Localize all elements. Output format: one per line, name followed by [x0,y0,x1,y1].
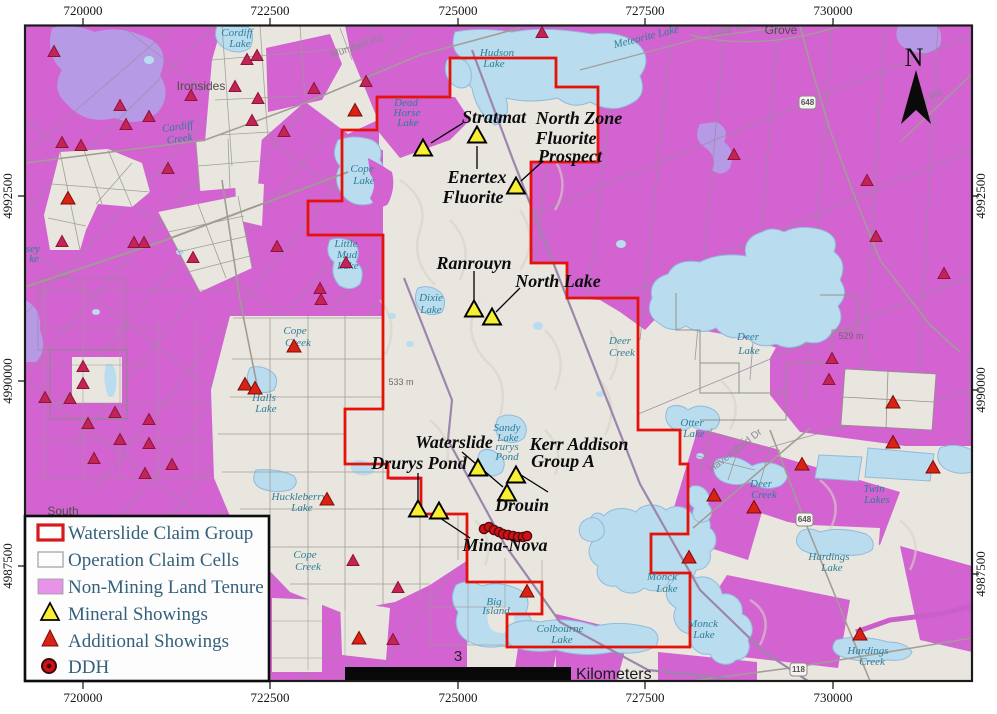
svg-text:Fluorite: Fluorite [441,187,503,207]
svg-text:Island: Island [481,605,510,617]
svg-text:Lake: Lake [820,562,843,574]
svg-text:Fluorite: Fluorite [534,128,596,148]
svg-text:722500: 722500 [251,3,290,18]
svg-text:ke: ke [29,253,39,265]
svg-text:118: 118 [792,665,805,674]
svg-text:730000: 730000 [814,3,853,18]
svg-text:Lake: Lake [550,634,573,646]
svg-text:Lake: Lake [682,428,705,440]
svg-text:Creek: Creek [859,656,886,668]
svg-text:4992500: 4992500 [0,173,15,219]
svg-text:720000: 720000 [64,690,103,705]
svg-text:Deer: Deer [608,335,632,347]
svg-text:Dixie: Dixie [418,292,443,304]
svg-text:533 m: 533 m [388,377,413,387]
svg-text:Lake: Lake [655,583,678,595]
svg-text:Waterslide Claim Group: Waterslide Claim Group [68,523,253,544]
svg-text:Monck: Monck [646,571,678,583]
svg-text:Lake: Lake [692,629,715,641]
svg-text:727500: 727500 [626,690,665,705]
svg-text:Cope: Cope [293,549,316,561]
svg-text:Cope: Cope [283,325,306,337]
svg-text:DDH: DDH [68,657,109,678]
svg-text:725000: 725000 [439,690,478,705]
svg-text:North Zone: North Zone [535,108,623,128]
svg-text:N: N [905,43,924,72]
svg-text:Operation Claim Cells: Operation Claim Cells [68,550,239,571]
svg-text:North Lake: North Lake [514,271,601,291]
svg-text:Mina-Nova: Mina-Nova [462,535,548,555]
svg-text:Creek: Creek [295,561,322,573]
svg-text:3: 3 [454,648,462,665]
svg-text:Creek: Creek [609,347,636,359]
svg-text:Lake: Lake [737,345,760,357]
svg-text:4990000: 4990000 [0,358,15,404]
svg-text:722500: 722500 [251,690,290,705]
svg-text:529 m: 529 m [838,331,863,341]
svg-text:Non-Mining Land Tenure: Non-Mining Land Tenure [68,577,264,598]
svg-text:Enertex: Enertex [446,167,506,187]
svg-text:727500: 727500 [626,3,665,18]
svg-text:Lake: Lake [352,175,375,187]
svg-text:Lake: Lake [228,38,251,50]
svg-text:Prospect: Prospect [537,146,603,166]
svg-text:648: 648 [798,515,812,524]
svg-text:Creek: Creek [751,489,778,501]
svg-text:Group A: Group A [531,451,595,471]
svg-text:4987500: 4987500 [0,543,15,589]
svg-text:725000: 725000 [439,3,478,18]
svg-text:Mineral Showings: Mineral Showings [68,604,208,625]
svg-text:4987500: 4987500 [973,551,988,597]
svg-text:Ranrouyn: Ranrouyn [435,253,511,273]
svg-text:Ironsides: Ironsides [177,79,226,93]
svg-text:Drurys Pond: Drurys Pond [370,453,468,473]
svg-text:Lakes: Lakes [863,494,890,506]
svg-text:Lake: Lake [290,502,313,514]
svg-text:Waterslide: Waterslide [415,432,493,452]
svg-text:Deer: Deer [736,331,760,343]
svg-text:730000: 730000 [814,690,853,705]
svg-text:648: 648 [801,98,815,107]
svg-text:Additional Showings: Additional Showings [68,631,229,652]
svg-text:Lake: Lake [396,117,419,129]
svg-text:4990000: 4990000 [973,367,988,413]
svg-text:Stratmat: Stratmat [462,107,527,127]
svg-text:Lake: Lake [482,58,505,70]
svg-text:Pond: Pond [494,451,519,463]
svg-text:Drouin: Drouin [494,495,549,515]
svg-text:Lake: Lake [419,304,442,316]
svg-text:4992500: 4992500 [973,173,988,219]
svg-text:Cope: Cope [350,163,373,175]
svg-text:720000: 720000 [64,3,103,18]
svg-text:Lake: Lake [254,403,277,415]
